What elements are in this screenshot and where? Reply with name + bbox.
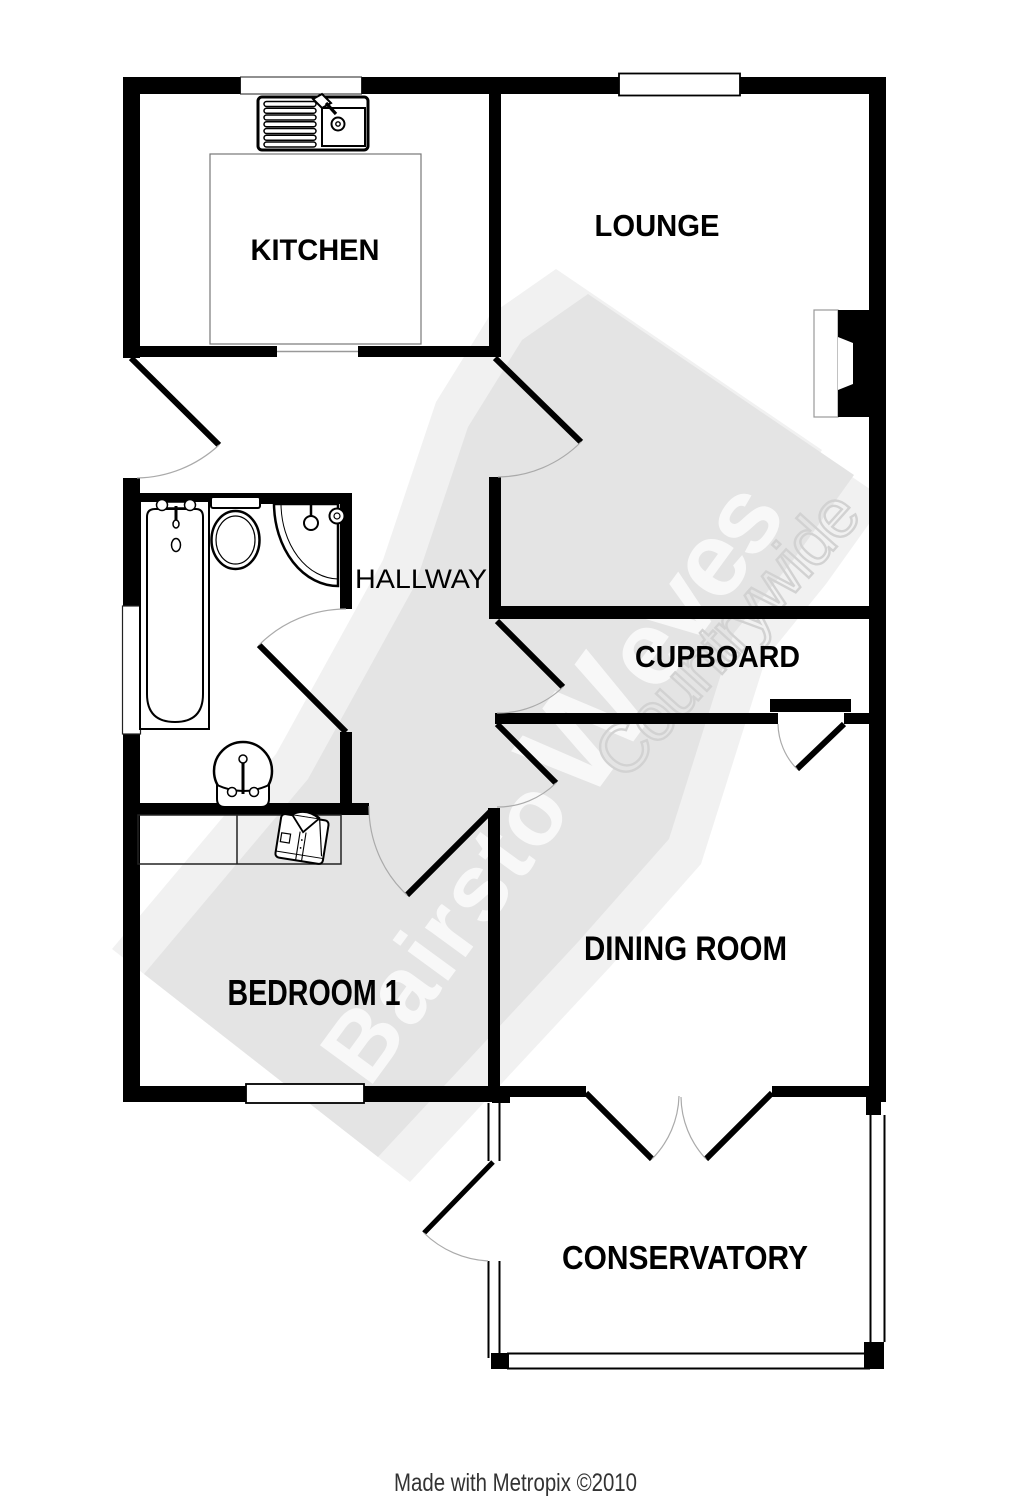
svg-text:CONSERVATORY: CONSERVATORY [562, 1240, 808, 1277]
svg-text:HALLWAY: HALLWAY [355, 564, 487, 594]
svg-text:KITCHEN: KITCHEN [251, 234, 380, 267]
svg-text:LOUNGE: LOUNGE [595, 209, 720, 243]
svg-text:DINING ROOM: DINING ROOM [584, 930, 787, 968]
svg-text:Made with Metropix ©2010: Made with Metropix ©2010 [394, 1469, 637, 1497]
svg-text:CUPBOARD: CUPBOARD [635, 640, 800, 674]
svg-text:BEDROOM 1: BEDROOM 1 [228, 972, 401, 1013]
